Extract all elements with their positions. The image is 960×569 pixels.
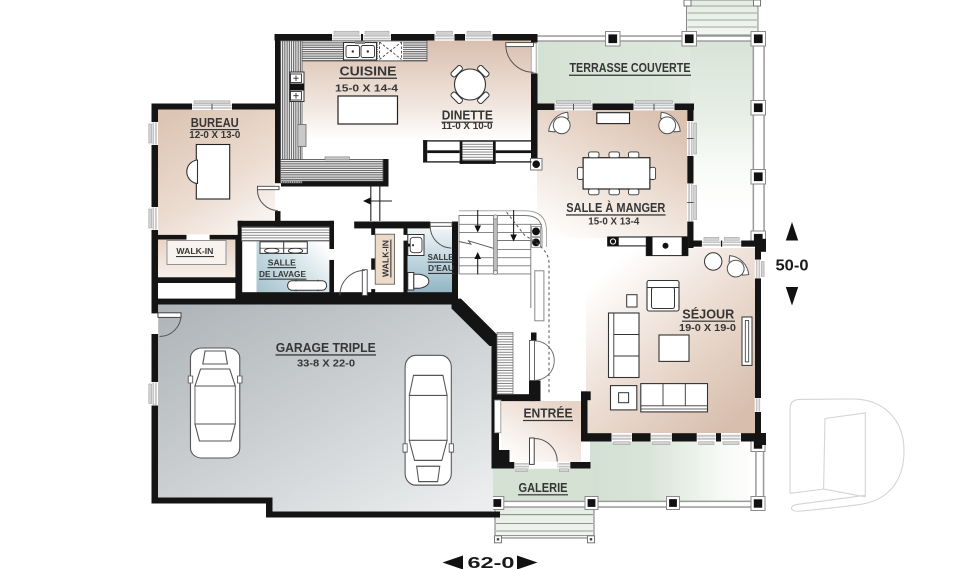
svg-text:62-0: 62-0	[468, 555, 515, 569]
svg-text:DE LAVAGE: DE LAVAGE	[259, 269, 306, 279]
svg-text:SALLE À MANGER: SALLE À MANGER	[566, 200, 665, 215]
svg-text:BUREAU: BUREAU	[191, 116, 239, 130]
svg-text:15-0 X 14-4: 15-0 X 14-4	[335, 82, 398, 94]
svg-text:GALERIE: GALERIE	[519, 481, 568, 495]
svg-text:19-0 X 19-0: 19-0 X 19-0	[679, 322, 736, 334]
svg-text:SALLE: SALLE	[428, 252, 454, 262]
svg-text:50-0: 50-0	[776, 258, 809, 275]
svg-text:12-0 X 13-0: 12-0 X 13-0	[189, 129, 240, 141]
svg-text:33-8 X 22-0: 33-8 X 22-0	[297, 357, 355, 369]
svg-text:D'EAU: D'EAU	[428, 263, 454, 273]
svg-text:WALK-IN: WALK-IN	[176, 246, 213, 256]
svg-text:15-0 X 13-4: 15-0 X 13-4	[588, 215, 639, 227]
svg-text:SALLE: SALLE	[268, 257, 296, 267]
svg-text:CUISINE: CUISINE	[340, 64, 397, 78]
svg-text:WALK-IN: WALK-IN	[381, 240, 391, 277]
svg-text:11-0 X 10-0: 11-0 X 10-0	[442, 120, 493, 132]
svg-text:TERRASSE COUVERTE: TERRASSE COUVERTE	[570, 61, 691, 75]
svg-text:ENTRÉE: ENTRÉE	[524, 406, 573, 421]
svg-text:GARAGE TRIPLE: GARAGE TRIPLE	[276, 341, 376, 355]
svg-text:SÉJOUR: SÉJOUR	[682, 306, 734, 321]
